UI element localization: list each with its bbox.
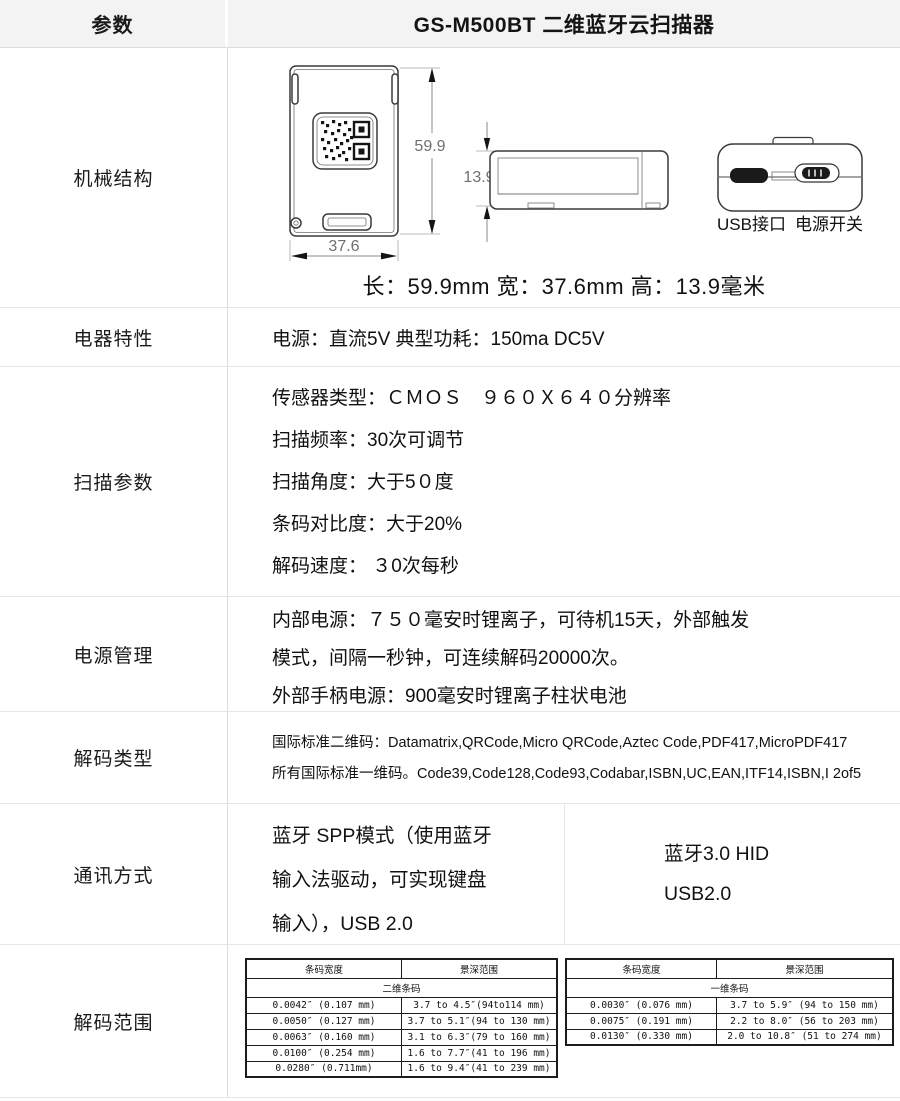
communication-line: 输入），USB 2.0 — [272, 902, 564, 946]
table-row: 0.0042″ (0.107 mm) 3.7 to 4.5″(94to114 m… — [246, 997, 557, 1013]
table-row: 0.0063″ (0.160 mm) 3.1 to 6.3″(79 to 160… — [246, 1029, 557, 1045]
table-header-row: 条码宽度 景深范围 — [246, 959, 557, 978]
decode-types-content: 国际标准二维码：Datamatrix,QRCode,Micro QRCode,A… — [228, 712, 900, 803]
mechanical-content: 59.9 37.6 — [228, 48, 900, 307]
page-title: GS-M500BT 二维蓝牙云扫描器 — [414, 9, 715, 39]
col-header-width: 条码宽度 — [566, 959, 716, 978]
range-table-2d: 条码宽度 景深范围 二维条码 0.0042″ (0.107 mm) 3.7 to… — [245, 958, 558, 1078]
communication-line: 蓝牙3.0 HID — [664, 834, 769, 874]
scanning-line: 条码对比度：大于20% — [272, 504, 900, 546]
communication-line: USB2.0 — [664, 874, 769, 914]
power-switch-icon — [795, 164, 839, 182]
power-switch-label: 电源开关 — [795, 215, 863, 234]
scanning-line: 扫描频率：30次可调节 — [272, 420, 900, 462]
row-electrical: 电器特性 电源：直流5V 典型功耗：150ma DC5V — [0, 308, 900, 367]
front-view-drawing — [290, 66, 398, 236]
header-param-cell: 参数 — [0, 0, 228, 47]
header-title-cell: GS-M500BT 二维蓝牙云扫描器 — [228, 0, 900, 47]
dimension-summary: 长：59.9mm 宽：37.6mm 高：13.9毫米 — [228, 269, 900, 301]
cell-range: 3.7 to 4.5″(94to114 mm) — [402, 997, 558, 1013]
span-label-2d: 二维条码 — [246, 978, 557, 997]
table-span-row: 二维条码 — [246, 978, 557, 997]
power-line: 模式，间隔一秒钟，可连续解码20000次。 — [272, 640, 900, 678]
communication-line: 蓝牙 SPP模式（使用蓝牙 — [272, 814, 564, 858]
table-row: 0.0280″ (0.711mm) 1.6 to 9.4″(41 to 239 … — [246, 1061, 557, 1077]
scanning-content: 传感器类型：ＣＭＯＳ ９６０Ｘ６４０分辨率 扫描频率：30次可调节 扫描角度：大… — [228, 367, 900, 596]
cell-width: 0.0063″ (0.160 mm) — [246, 1029, 402, 1045]
header-row: 参数 GS-M500BT 二维蓝牙云扫描器 — [0, 0, 900, 48]
usb-port-icon — [730, 168, 768, 183]
col-header-range: 景深范围 — [402, 959, 558, 978]
row-label-decode-types: 解码类型 — [0, 712, 228, 803]
cell-range: 1.6 to 9.4″(41 to 239 mm) — [402, 1061, 558, 1077]
range-table-1d: 条码宽度 景深范围 一维条码 0.0030″ (0.076 mm) 3.7 to… — [565, 958, 894, 1046]
table-row: 0.0075″ (0.191 mm) 2.2 to 8.0″ (56 to 20… — [566, 1013, 893, 1029]
scanning-line: 解码速度： ３0次每秒 — [272, 546, 900, 588]
table-row: 0.0050″ (0.127 mm) 3.7 to 5.1″(94 to 130… — [246, 1013, 557, 1029]
row-label-scanning: 扫描参数 — [0, 367, 228, 596]
cell-range: 1.6 to 7.7″(41 to 196 mm) — [402, 1045, 558, 1061]
scanning-line: 扫描角度：大于5０度 — [272, 462, 900, 504]
back-view-drawing: USB接口 电源开关 — [717, 138, 863, 235]
table-header-row: 条码宽度 景深范围 — [566, 959, 893, 978]
cell-width: 0.0280″ (0.711mm) — [246, 1061, 402, 1077]
communication-hid-cell: 蓝牙3.0 HID USB2.0 — [565, 804, 900, 944]
cell-range: 3.1 to 6.3″(79 to 160 mm) — [402, 1029, 558, 1045]
scanning-line: 传感器类型：ＣＭＯＳ ９６０Ｘ６４０分辨率 — [272, 378, 900, 420]
electrical-text: 电源：直流5V 典型功耗：150ma DC5V — [228, 324, 605, 351]
row-label-decode-range: 解码范围 — [0, 945, 228, 1097]
cell-range: 2.0 to 10.8″ (51 to 274 mm) — [716, 1029, 893, 1045]
table-row: 0.0030″ (0.076 mm) 3.7 to 5.9″ (94 to 15… — [566, 997, 893, 1013]
decode-types-line: 国际标准二维码：Datamatrix,QRCode,Micro QRCode,A… — [272, 728, 900, 759]
cell-width: 0.0042″ (0.107 mm) — [246, 997, 402, 1013]
decode-range-content: 条码宽度 景深范围 二维条码 0.0042″ (0.107 mm) 3.7 to… — [228, 945, 900, 1097]
cell-width: 0.0050″ (0.127 mm) — [246, 1013, 402, 1029]
cell-range: 2.2 to 8.0″ (56 to 203 mm) — [716, 1013, 893, 1029]
col-header-range: 景深范围 — [716, 959, 893, 978]
usb-port-label: USB接口 — [717, 215, 786, 234]
row-label-power: 电源管理 — [0, 597, 228, 711]
power-content: 内部电源：７５０毫安时锂离子，可待机15天，外部触发 模式，间隔一秒钟，可连续解… — [228, 597, 900, 711]
row-decode-types: 解码类型 国际标准二维码：Datamatrix,QRCode,Micro QRC… — [0, 712, 900, 804]
scanner-technical-drawing: 59.9 37.6 — [228, 48, 900, 263]
row-power: 电源管理 内部电源：７５０毫安时锂离子，可待机15天，外部触发 模式，间隔一秒钟… — [0, 597, 900, 712]
table-span-row: 一维条码 — [566, 978, 893, 997]
row-label-mechanical: 机械结构 — [0, 48, 228, 307]
cell-range: 3.7 to 5.9″ (94 to 150 mm) — [716, 997, 893, 1013]
side-view-drawing — [490, 151, 668, 209]
cell-range: 3.7 to 5.1″(94 to 130 mm) — [402, 1013, 558, 1029]
electrical-content: 电源：直流5V 典型功耗：150ma DC5V — [228, 308, 900, 366]
dimension-width: 37.6 — [290, 238, 398, 261]
table-row: 0.0130″ (0.330 mm) 2.0 to 10.8″ (51 to 2… — [566, 1029, 893, 1045]
decode-types-line: 所有国际标准一维码。Code39,Code128,Code93,Codabar,… — [272, 759, 900, 790]
communication-spp-cell: 蓝牙 SPP模式（使用蓝牙 输入法驱动，可实现键盘 输入），USB 2.0 — [228, 804, 565, 944]
communication-line: 输入法驱动，可实现键盘 — [272, 858, 564, 902]
row-communication: 通讯方式 蓝牙 SPP模式（使用蓝牙 输入法驱动，可实现键盘 输入），USB 2… — [0, 804, 900, 945]
span-label-1d: 一维条码 — [566, 978, 893, 997]
cell-width: 0.0130″ (0.330 mm) — [566, 1029, 716, 1045]
col-header-width: 条码宽度 — [246, 959, 402, 978]
cell-width: 0.0100″ (0.254 mm) — [246, 1045, 402, 1061]
table-row: 0.0100″ (0.254 mm) 1.6 to 7.7″(41 to 196… — [246, 1045, 557, 1061]
cell-width: 0.0030″ (0.076 mm) — [566, 997, 716, 1013]
row-mechanical: 机械结构 — [0, 48, 900, 308]
dim-height-label: 59.9 — [414, 138, 445, 155]
power-line: 外部手柄电源：900毫安时锂离子柱状电池 — [272, 678, 900, 716]
row-decode-range: 解码范围 条码宽度 景深范围 二维条码 0.0042″ (0.107 mm) 3… — [0, 945, 900, 1098]
power-line: 内部电源：７５０毫安时锂离子，可待机15天，外部触发 — [272, 602, 900, 640]
spec-sheet: 参数 GS-M500BT 二维蓝牙云扫描器 机械结构 — [0, 0, 900, 1101]
row-label-electrical: 电器特性 — [0, 308, 228, 366]
row-scanning: 扫描参数 传感器类型：ＣＭＯＳ ９６０Ｘ６４０分辨率 扫描频率：30次可调节 扫… — [0, 367, 900, 597]
row-label-communication: 通讯方式 — [0, 804, 228, 944]
dim-width-label: 37.6 — [328, 238, 359, 255]
communication-content: 蓝牙 SPP模式（使用蓝牙 输入法驱动，可实现键盘 输入），USB 2.0 蓝牙… — [228, 804, 900, 944]
cell-width: 0.0075″ (0.191 mm) — [566, 1013, 716, 1029]
dimension-height: 59.9 — [400, 68, 446, 234]
